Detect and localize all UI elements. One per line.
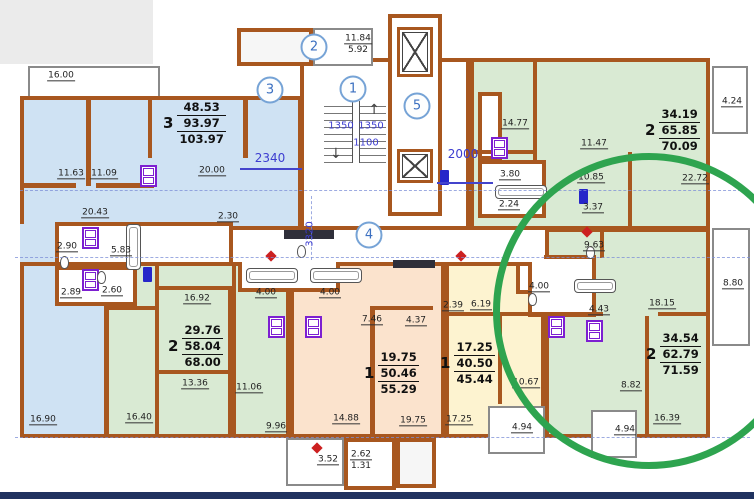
apartment-summary-label: 117.2540.5045.44 bbox=[440, 340, 495, 387]
apartment-area-value: 50.46 bbox=[378, 366, 418, 382]
room-area-label: 2.90 bbox=[56, 241, 78, 252]
wall-segment bbox=[375, 306, 433, 310]
axis-bubble-2: 2 bbox=[301, 34, 328, 61]
room-area-label: 5.92 bbox=[347, 45, 369, 55]
apartment-area-value: 93.97 bbox=[177, 116, 225, 132]
axis-bubble-5: 5 bbox=[404, 93, 431, 120]
dimension-label: 2340 bbox=[255, 151, 286, 165]
room-area-label: 9.96 bbox=[265, 421, 287, 432]
wall-segment bbox=[228, 290, 232, 436]
electric-panel-icon bbox=[143, 267, 152, 282]
elevator-shaft-box bbox=[397, 27, 433, 77]
dimension-line bbox=[437, 182, 493, 184]
room-area-label: 3.80 bbox=[499, 169, 521, 180]
apartment-room-count: 1 bbox=[364, 364, 374, 382]
wall-segment bbox=[148, 100, 152, 158]
bathtub-icon bbox=[310, 268, 362, 283]
room-area-label: 7.46 bbox=[361, 314, 383, 325]
stove-icon bbox=[305, 316, 322, 338]
stairs-down-arrow-icon: ↓ bbox=[330, 147, 342, 161]
room-area-label: 20.43 bbox=[81, 207, 109, 218]
room-area-label: 11.84 bbox=[344, 33, 372, 44]
stove-icon bbox=[268, 316, 285, 338]
room-area-label: 13.36 bbox=[181, 378, 209, 389]
apartment-areas: 48.5393.97103.97 bbox=[177, 100, 225, 147]
apartment-area-value: 45.44 bbox=[454, 372, 494, 387]
elevator-x-icon bbox=[402, 154, 428, 178]
entrance-canopy bbox=[393, 260, 435, 268]
apartment-summary-label: 229.7658.0468.00 bbox=[168, 323, 223, 370]
dimension-label: 1350 bbox=[328, 121, 353, 132]
dimension-label: 1350 bbox=[358, 121, 383, 132]
apartment-area-value: 19.75 bbox=[378, 350, 418, 366]
apartment-areas: 29.7658.0468.00 bbox=[182, 323, 222, 370]
bathtub-icon bbox=[246, 268, 298, 283]
room-area-label: 6.19 bbox=[470, 299, 492, 310]
apartment-areas: 17.2540.5045.44 bbox=[454, 340, 494, 387]
room-area-label: 4.37 bbox=[405, 315, 427, 326]
room-area-label: 19.75 bbox=[399, 415, 427, 426]
apartment-room-count: 2 bbox=[645, 121, 655, 139]
bottom-edge-bar bbox=[0, 492, 754, 499]
elevator-shaft-box bbox=[397, 149, 433, 183]
room-area-label: 11.47 bbox=[580, 138, 608, 149]
apartment-area-value: 58.04 bbox=[182, 339, 222, 355]
apartment-area-value: 48.53 bbox=[177, 100, 225, 116]
room-area-label: 5.83 bbox=[110, 245, 132, 256]
room-area-label: 16.90 bbox=[29, 414, 57, 425]
apartment-room-count: 1 bbox=[440, 354, 450, 372]
room-area-label: 4.24 bbox=[721, 96, 743, 107]
room-area-label: 4.00 bbox=[319, 287, 341, 298]
staircase-divider bbox=[352, 101, 360, 163]
dimension-label: 1100 bbox=[353, 138, 378, 149]
room-area-label: 2.39 bbox=[442, 300, 464, 311]
wall-segment bbox=[105, 306, 155, 310]
stove-icon bbox=[140, 165, 157, 187]
apartment-area-value: 17.25 bbox=[454, 340, 494, 356]
apartment-area-value: 65.85 bbox=[659, 123, 699, 139]
page-corner-block bbox=[0, 0, 153, 64]
staircase: ↓↑ bbox=[324, 101, 386, 163]
wall-segment bbox=[158, 370, 232, 374]
apartment-area-value: 103.97 bbox=[177, 132, 225, 147]
apartment-area-value: 34.19 bbox=[659, 107, 699, 123]
room-area-label: 2.24 bbox=[498, 199, 520, 210]
apartment-room-count: 3 bbox=[163, 114, 173, 132]
room-area-label: 11.09 bbox=[90, 168, 118, 179]
axis-bubble-1: 1 bbox=[340, 76, 367, 103]
room-area-label: 2.62 bbox=[350, 449, 372, 460]
room-area-label: 14.77 bbox=[501, 118, 529, 129]
apartment-areas: 34.1965.8570.09 bbox=[659, 107, 699, 154]
floor-plan-canvas: ↓↑ 16.0011.6311.0920.002.3020.432.905.83… bbox=[0, 0, 754, 499]
apartment-area-value: 29.76 bbox=[182, 323, 222, 339]
room-area-label: 2.30 bbox=[217, 211, 239, 222]
room-area-label: 16.40 bbox=[125, 412, 153, 423]
room-area-label: 4.94 bbox=[511, 422, 533, 433]
room-area-label: 4.00 bbox=[255, 287, 277, 298]
axis-bubble-3: 3 bbox=[257, 77, 284, 104]
axis-bubble-4: 4 bbox=[356, 222, 383, 249]
room-area-label: 20.00 bbox=[198, 165, 226, 176]
wall-segment bbox=[24, 183, 76, 188]
room-region-ramp-hatch bbox=[396, 438, 436, 488]
wall-segment bbox=[533, 60, 537, 162]
room-area-label: 2.89 bbox=[60, 287, 82, 298]
toilet-icon bbox=[97, 271, 106, 284]
room-area-label: 2.60 bbox=[101, 285, 123, 296]
apartment-summary-label: 348.5393.97103.97 bbox=[163, 100, 226, 147]
room-area-label: 3.52 bbox=[317, 454, 339, 465]
elevator-x-icon bbox=[402, 32, 428, 72]
room-area-label: 16.00 bbox=[47, 70, 75, 81]
room-area-label: 17.25 bbox=[445, 414, 473, 425]
dimension-line bbox=[240, 168, 302, 170]
dimension-label: 2000 bbox=[448, 147, 479, 161]
stairs-up-arrow-icon: ↑ bbox=[368, 103, 380, 117]
room-area-label: 11.63 bbox=[57, 168, 85, 179]
apartment-summary-label: 119.7550.4655.29 bbox=[364, 350, 419, 397]
stove-icon bbox=[82, 227, 99, 249]
apartment-areas: 19.7550.4655.29 bbox=[378, 350, 418, 397]
apartment-area-value: 70.09 bbox=[659, 139, 699, 154]
room-area-label: 14.88 bbox=[332, 413, 360, 424]
room-area-label: 11.06 bbox=[235, 382, 263, 393]
apartment-area-value: 55.29 bbox=[378, 382, 418, 397]
dimension-label: 3320 bbox=[305, 221, 316, 246]
wall-segment bbox=[243, 96, 248, 158]
wall-segment bbox=[158, 286, 232, 290]
apartment-summary-label: 234.1965.8570.09 bbox=[645, 107, 700, 154]
room-area-label: 1.31 bbox=[350, 461, 372, 471]
stove-icon bbox=[491, 137, 508, 159]
apartment-area-value: 68.00 bbox=[182, 355, 222, 370]
apartment-room-count: 2 bbox=[168, 337, 178, 355]
apartment-area-value: 40.50 bbox=[454, 356, 494, 372]
room-area-label: 16.92 bbox=[183, 293, 211, 304]
